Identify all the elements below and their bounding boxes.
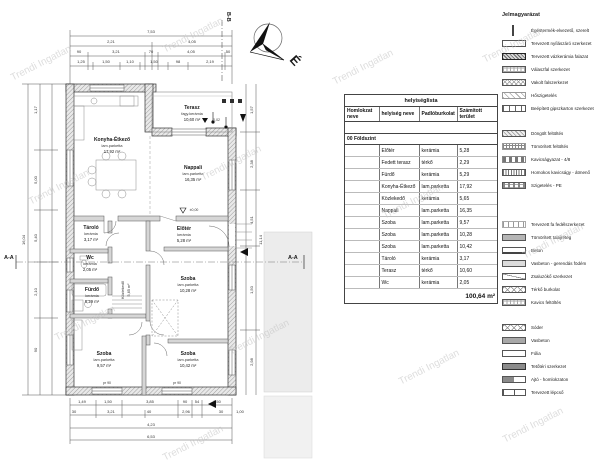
svg-text:lam.parketta: lam.parketta (94, 358, 116, 362)
window-swatch-icon (502, 40, 526, 47)
svg-text:Terasz: Terasz (184, 105, 200, 111)
svg-text:40: 40 (147, 409, 152, 414)
svg-text:6,53: 6,53 (147, 434, 156, 439)
doors (104, 136, 235, 356)
svg-text:lam.parketta: lam.parketta (102, 144, 124, 148)
plaster-swatch-icon (502, 79, 526, 86)
section-label-bb: B-B (225, 12, 231, 22)
table-row: Szobalam.parketta10,42 (345, 241, 497, 253)
table-row: Nappalilam.parketta16,35 (345, 205, 497, 217)
svg-text:30: 30 (72, 409, 77, 414)
north-letter: É (287, 52, 304, 69)
sand-gravel-swatch-icon (502, 169, 526, 176)
table-row: Közlekedőkerámia5,65 (345, 193, 497, 205)
svg-text:90: 90 (33, 347, 38, 352)
svg-text:±0,00: ±0,00 (190, 208, 199, 212)
svg-text:16,35 m²: 16,35 m² (185, 177, 202, 182)
formwork-block-swatch-icon (502, 273, 526, 280)
drywall-swatch-icon (502, 105, 526, 112)
column-header-area: Számított terület (457, 107, 497, 122)
room-label-nappali: Nappali lam.parketta 16,35 m² (183, 165, 205, 182)
svg-text:lam.parketta: lam.parketta (183, 172, 205, 176)
svg-text:Konyha-Étkező: Konyha-Étkező (94, 135, 130, 143)
room-labels: Terasz fagy.kerámia 10,60 m² Konyha-Étke… (83, 105, 204, 368)
legend: Jelmagyarázat Égéstermék-elvezető, szere… (502, 12, 598, 399)
svg-text:5,28 m²: 5,28 m² (177, 238, 192, 243)
svg-text:70: 70 (149, 49, 154, 54)
level-markers: ±0,00 -0,02 pr 90 pr 90 (103, 118, 220, 385)
svg-text:Tároló: Tároló (83, 225, 98, 231)
svg-text:3,17 m²: 3,17 m² (84, 237, 99, 242)
svg-text:2,98: 2,98 (249, 357, 254, 366)
legend-item: Tetőtéri szerkezet (502, 360, 598, 373)
legend-item: Kavics feltöltés (502, 296, 598, 309)
section-label-aa-left: A-A (4, 255, 14, 261)
flue-swatch-icon (512, 25, 514, 36)
svg-text:pr 90: pr 90 (103, 381, 111, 385)
svg-text:1,25: 1,25 (77, 59, 86, 64)
column-header-story: Homlokzat neve (345, 107, 379, 122)
table-row: Szobalam.parketta9,57 (345, 217, 497, 229)
room-label-szoba3: Szoba lam.parketta 10,42 m² (178, 351, 200, 368)
facade-door-swatch-icon (502, 376, 526, 383)
legend-item: Hőszigetelés (502, 89, 598, 102)
total-area: 100,64 m² (457, 289, 497, 304)
timber-roof-swatch-icon (502, 221, 526, 228)
legend-item: Fólia (502, 347, 598, 360)
svg-text:1,50: 1,50 (249, 285, 254, 294)
legend-item: Sóder (502, 321, 598, 334)
svg-text:Nappali: Nappali (184, 165, 203, 171)
watermark: Trendi Ingatlan (331, 48, 395, 88)
svg-text:10,60 m²: 10,60 m² (184, 117, 201, 122)
svg-text:1,00: 1,00 (236, 409, 245, 414)
floor-plan-sheet: 7,53 2,21 4,05 90 3,21 70 4,05 50 1,25 1… (0, 0, 600, 472)
paving-swatch-icon (502, 286, 526, 293)
svg-text:4,23: 4,23 (147, 422, 156, 427)
roof-structure-swatch-icon (502, 363, 526, 370)
legend-item: Tervezett fa fedélszerkezet (502, 218, 598, 231)
room-label-szoba2: Szoba lam.parketta 9,57 m² (94, 351, 116, 368)
svg-text:5,00: 5,00 (33, 175, 38, 184)
legend-item: Vasbeton (502, 334, 598, 347)
legend-item: Zsaluzókő szerkezet (502, 270, 598, 283)
legend-item: Döngölt feltöltés (502, 127, 598, 140)
fill-swatch-icon (502, 130, 526, 137)
svg-text:1,57: 1,57 (249, 105, 254, 114)
table-row: Tárolókerámia3,17 (345, 253, 497, 265)
svg-text:4,05: 4,05 (188, 39, 197, 44)
svg-text:Szoba: Szoba (181, 276, 196, 282)
svg-text:30: 30 (219, 409, 224, 414)
legend-item: Szigetelés - PE (502, 179, 598, 192)
svg-text:Szoba: Szoba (181, 351, 196, 357)
table-row: Fedett terasztérkő2,29 (345, 157, 497, 169)
room-label-wc: Wc kerámia 2,05 m² (83, 255, 98, 272)
legend-title: Jelmagyarázat (502, 12, 598, 18)
svg-text:5,29 m²: 5,29 m² (85, 299, 100, 304)
legend-item: Térkő burkolat (502, 283, 598, 296)
svg-text:2,21: 2,21 (107, 39, 116, 44)
svg-text:5,40: 5,40 (33, 233, 38, 242)
reinforced-concrete-swatch-icon (502, 337, 526, 344)
table-row: Terasztérkő10,60 (345, 265, 497, 277)
table-title: helyiséglista (345, 95, 497, 107)
svg-text:10,42 m²: 10,42 m² (180, 363, 197, 368)
terrace-posts (222, 99, 242, 103)
svg-text:2,10: 2,10 (33, 287, 38, 296)
svg-text:Szoba: Szoba (97, 351, 112, 357)
room-label-konyha: Konyha-Étkező lam.parketta 17,92 m² (94, 135, 130, 154)
legend-item: Beton (502, 244, 598, 257)
svg-text:4,05: 4,05 (187, 49, 196, 54)
room-label-eloter: Előtér kerámia 5,28 m² (177, 226, 192, 243)
svg-text:pr 90: pr 90 (173, 381, 181, 385)
brick-swatch-icon (502, 53, 526, 60)
legend-item: Beépített gipszkarton szerkezet (502, 102, 598, 115)
gravel-bed-swatch-icon (502, 156, 526, 163)
svg-text:17,92 m²: 17,92 m² (104, 149, 121, 154)
floor-plan-svg: 7,53 2,21 4,05 90 3,21 70 4,05 50 1,25 1… (0, 0, 340, 472)
legend-item: Vasbeton - gerendás födém (502, 257, 598, 270)
svg-text:10,28 m²: 10,28 m² (180, 288, 197, 293)
room-label-terasz: Terasz fagy.kerámia 10,60 m² (181, 105, 203, 122)
svg-text:90: 90 (77, 49, 82, 54)
legend-item: Tömörített talajréteg (502, 231, 598, 244)
table-row: Konyha-Étkezőlam.parketta17,92 (345, 181, 497, 193)
north-compass-icon: É (250, 22, 304, 69)
watermark: Trendi Ingatlan (501, 406, 565, 446)
watermark: Trendi Ingatlan (397, 348, 461, 388)
foil-swatch-icon (502, 350, 526, 357)
soil-swatch-icon (502, 234, 526, 241)
svg-text:fagy.kerámia: fagy.kerámia (181, 112, 203, 116)
svg-text:7,53: 7,53 (147, 29, 156, 34)
svg-text:9,57 m²: 9,57 m² (97, 363, 112, 368)
legend-item: Tömörített feltöltés (502, 140, 598, 153)
svg-text:Fürdő: Fürdő (85, 287, 99, 293)
compacted-fill-swatch-icon (502, 143, 526, 150)
svg-text:3,21: 3,21 (112, 49, 121, 54)
svg-text:1,10: 1,10 (126, 59, 135, 64)
legend-item: Tervezett lépcső (502, 386, 598, 399)
column-header-room: helyiség neve (379, 107, 419, 122)
svg-text:lam.parketta: lam.parketta (178, 283, 200, 287)
legend-item: Ajtó - homlokzaton (502, 373, 598, 386)
svg-text:1,50: 1,50 (104, 399, 113, 404)
gravel-fill-swatch-icon (502, 299, 526, 306)
svg-text:kerámia: kerámia (85, 294, 99, 298)
table-row: Fürdőkerámia5,29 (345, 169, 497, 181)
svg-text:16,04: 16,04 (21, 234, 26, 245)
svg-text:2,96: 2,96 (182, 409, 191, 414)
svg-text:3,85: 3,85 (146, 399, 155, 404)
interior-walls (70, 216, 228, 395)
story-group-header: 00 Földszint (345, 134, 497, 145)
insulation-swatch-icon (502, 92, 526, 99)
legend-item: Tervezett vázkerámia falazat (502, 50, 598, 63)
svg-text:3,21: 3,21 (107, 409, 116, 414)
svg-text:kerámia: kerámia (177, 233, 191, 237)
legend-item: Homokos kavicságy - átmenő (502, 166, 598, 179)
svg-text:1,50: 1,50 (102, 59, 111, 64)
legend-item: Kavicságyazat - 4/8 (502, 153, 598, 166)
svg-text:11,14: 11,14 (258, 234, 263, 244)
column-header-floor: Padlóburkolat (419, 107, 457, 122)
svg-text:kerámia: kerámia (84, 232, 98, 236)
table-row: Wckerámia2,05 (345, 277, 497, 289)
svg-text:90: 90 (183, 399, 188, 404)
svg-text:98: 98 (176, 59, 181, 64)
room-label-szoba1: Szoba lam.parketta 10,28 m² (178, 276, 200, 293)
legend-item: Válaszfal szerkezet (502, 63, 598, 76)
concrete-swatch-icon (502, 247, 526, 254)
svg-text:4,51: 4,51 (249, 215, 254, 224)
table-row: Előtérkerámia5,28 (345, 145, 497, 157)
svg-text:5,65 m²: 5,65 m² (127, 283, 131, 297)
svg-text:2,05 m²: 2,05 m² (83, 267, 98, 272)
table-row: Szobalam.parketta10,28 (345, 229, 497, 241)
svg-text:1,49: 1,49 (78, 399, 87, 404)
svg-text:2,38: 2,38 (249, 159, 254, 168)
section-label-aa-right: A-A (288, 255, 298, 261)
membrane-swatch-icon (502, 182, 526, 189)
svg-text:kerámia: kerámia (83, 262, 97, 266)
svg-text:-0,02: -0,02 (212, 118, 220, 122)
ballast-swatch-icon (502, 324, 526, 331)
room-label-furdo: Fürdő kerámia 5,29 m² (85, 287, 100, 304)
room-label-tarolo: Tároló kerámia 3,17 m² (83, 225, 98, 242)
legend-item: Égéstermék-elvezető, szerelt (502, 24, 598, 37)
legend-item: Vakolt falszerkezet (502, 76, 598, 89)
rc-slab-swatch-icon (502, 260, 526, 267)
svg-text:lam.parketta: lam.parketta (178, 358, 200, 362)
room-schedule-table: helyiséglista Homlokzat neve helyiség ne… (344, 94, 498, 304)
svg-text:Előtér: Előtér (177, 226, 191, 232)
svg-text:2,19: 2,19 (206, 59, 215, 64)
stair-swatch-icon (502, 389, 526, 396)
legend-item: Tervezett nyílászáró szerkezet (502, 37, 598, 50)
svg-text:1,17: 1,17 (33, 105, 38, 114)
svg-text:Közlekedő: Közlekedő (121, 281, 125, 299)
partition-swatch-icon (502, 66, 526, 73)
svg-text:50: 50 (226, 49, 231, 54)
svg-text:1,50: 1,50 (150, 59, 159, 64)
svg-text:54: 54 (195, 399, 200, 404)
site-context (264, 232, 312, 458)
svg-text:Wc: Wc (86, 255, 94, 261)
